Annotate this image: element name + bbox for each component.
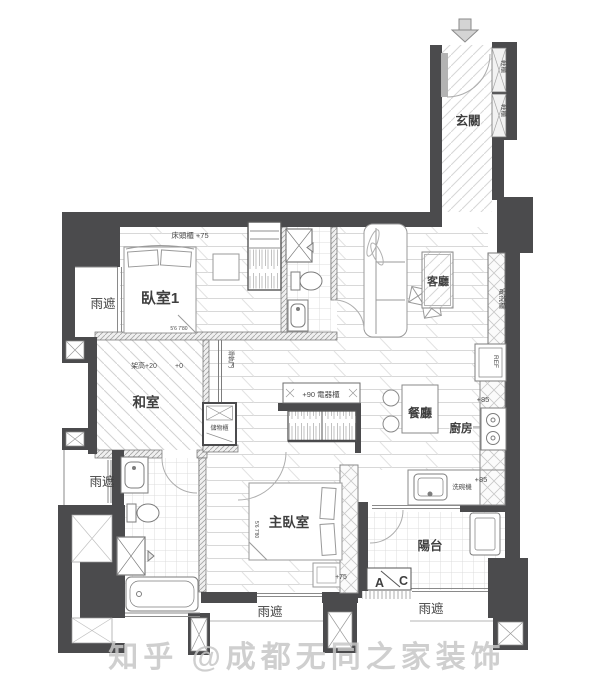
tatami-zero-label: +0 — [175, 363, 183, 370]
counter-level-lower-label: +85 — [475, 475, 488, 484]
canopy-label-upper-left: 雨遮 — [90, 296, 115, 311]
bedroom1-wardrobe — [248, 222, 281, 290]
toilet2 — [127, 504, 159, 522]
shoe-cabinet-upper-label: 鞋櫃 — [500, 60, 509, 74]
vanity-sink1 — [288, 300, 308, 331]
counter-level-upper-label: +85 — [477, 395, 490, 404]
column-left-lower — [62, 428, 88, 450]
headboard-cabinet-label: 床頭櫃 +75 — [171, 230, 208, 240]
entry-arrow-icon — [452, 19, 478, 42]
tatami-label: 和室 — [133, 394, 160, 410]
storage-cabinet-label: 儲物櫃 — [210, 424, 228, 432]
stove — [481, 408, 506, 450]
bedroom1-desk — [213, 254, 239, 280]
tv-cabinet-label: 電視櫃 — [498, 288, 507, 309]
living-floor — [337, 227, 488, 345]
entry-label: 玄關 — [455, 113, 480, 128]
storage-cabinet — [203, 403, 236, 445]
master-bed-pillow — [320, 524, 336, 556]
balcony-label: 陽台 — [417, 538, 442, 553]
section-mark-c: C — [399, 574, 408, 588]
floor-plan-drawing: 玄關 客廳 臥室1 和室 餐廳 廚房 主臥室 陽台 雨遮 雨遮 雨遮 雨遮 床頭… — [0, 0, 602, 678]
canopy-label-lower-left: 雨遮 — [89, 474, 114, 489]
tatami-raised-label: 架高+20 — [131, 361, 157, 370]
sofa — [364, 224, 407, 337]
fridge-label: REF — [492, 355, 499, 368]
dishwasher-label: 洗碗機 — [452, 482, 472, 491]
dining-label: 餐廳 — [408, 405, 432, 420]
appliance-cabinet-label: +90 電器櫃 — [302, 389, 340, 399]
master-entry-wardrobe — [288, 411, 356, 441]
floor-plan-page: 玄關 客廳 臥室1 和室 餐廳 廚房 主臥室 陽台 雨遮 雨遮 雨遮 雨遮 床頭… — [0, 0, 602, 678]
master-bed-pillow — [320, 488, 336, 520]
section-mark-a: A — [375, 576, 384, 590]
shower1 — [286, 229, 313, 262]
canopy-label-bottom-right: 雨遮 — [418, 601, 443, 616]
dining-chair — [383, 416, 399, 432]
washing-machine — [470, 513, 500, 555]
master-bedroom-label: 主臥室 — [269, 514, 310, 530]
entry-door-leaf — [441, 53, 448, 97]
dining-chair — [383, 390, 399, 406]
kitchen-label: 廚房 — [450, 421, 473, 435]
sliding-door-label: 滑軌門 — [227, 350, 235, 368]
master-bed-dim-label: 5'6 7'80 — [253, 521, 259, 538]
canopy-label-bottom-center: 雨遮 — [257, 604, 282, 619]
vanity-sink2 — [121, 457, 148, 493]
bathtub — [126, 577, 198, 611]
bed1-pillow — [128, 250, 159, 267]
living-label: 客廳 — [426, 274, 449, 288]
shoe-cabinet-lower-label: 鞋櫃 — [500, 104, 509, 118]
bedroom1-label: 臥室1 — [141, 289, 179, 307]
watermark-text: 知乎 @成都无同之家装饰 — [108, 640, 506, 674]
balcony-edge-hatch — [362, 591, 412, 599]
toilet1 — [291, 272, 322, 290]
bed1-pillow — [160, 250, 191, 267]
entry-floor — [442, 45, 492, 212]
bedroom1-dim-label: 5'6 7'80 — [170, 326, 187, 332]
fridge — [475, 344, 506, 381]
master-platform-label: +75 — [335, 574, 347, 581]
column-left-upper — [62, 337, 88, 363]
